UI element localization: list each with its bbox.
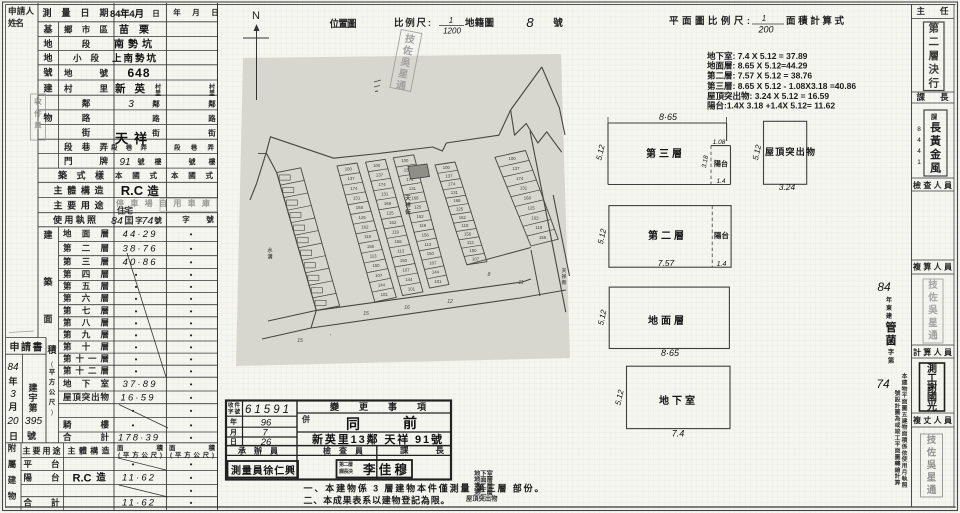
svg-text:主要用途: 主要用途 (23, 446, 62, 456)
svg-text:小 段: 小 段 (72, 53, 99, 63)
svg-text:佐: 佐 (927, 292, 938, 304)
svg-text:日: 日 (9, 432, 18, 442)
svg-text:段 巷 弄: 段 巷 弄 (64, 142, 108, 152)
svg-text:•: • (135, 343, 138, 352)
svg-text:騎 樓: 騎 樓 (63, 419, 109, 429)
svg-text:16: 16 (404, 305, 410, 311)
svg-text:•: • (190, 380, 193, 389)
svg-text:係: 係 (902, 442, 908, 450)
svg-text:第二層: 第二層 (339, 461, 353, 468)
svg-text:段: 段 (82, 39, 91, 49)
svg-text:•: • (190, 487, 193, 496)
svg-text:•: • (135, 331, 138, 340)
svg-text:137: 137 (348, 176, 356, 181)
svg-text:100: 100 (345, 167, 353, 172)
svg-text:一、本建物係 3 層建物本件僅測量 第三層 部份。: 一、本建物係 3 層建物本件僅測量 第三層 部份。 (304, 483, 544, 494)
svg-text:156: 156 (539, 235, 547, 240)
svg-text:地面層: 地面層 (648, 314, 684, 327)
svg-text:•: • (190, 245, 193, 254)
svg-text:84年4月: 84年4月 (110, 8, 144, 20)
svg-text:設: 設 (895, 395, 901, 403)
svg-text:162: 162 (361, 225, 369, 230)
svg-text:第: 第 (888, 356, 895, 365)
svg-text:162: 162 (459, 215, 467, 220)
svg-text:月: 月 (7, 402, 17, 412)
svg-text:里: 里 (209, 90, 215, 98)
svg-text:地 面 層: 地 面 層 (63, 229, 109, 239)
svg-text:125: 125 (414, 205, 422, 210)
svg-text:101: 101 (381, 292, 389, 297)
svg-text:計: 計 (895, 402, 901, 410)
svg-text:113: 113 (424, 242, 431, 247)
svg-text:管: 管 (886, 320, 897, 334)
svg-text:號: 號 (138, 157, 145, 166)
svg-text:面: 面 (43, 314, 52, 324)
svg-text:137: 137 (445, 173, 453, 178)
svg-text:屋頂突出物: 屋頂突出物 (765, 146, 815, 157)
svg-text:•: • (190, 460, 193, 469)
svg-text:佐: 佐 (926, 447, 937, 459)
svg-text:章: 章 (34, 120, 42, 130)
svg-text:648: 648 (127, 66, 150, 80)
svg-text:築: 築 (42, 276, 53, 287)
svg-text:1: 1 (917, 159, 921, 166)
svg-text:R.C: R.C (121, 183, 144, 198)
svg-text:水: 水 (266, 247, 273, 254)
svg-text:•: • (190, 343, 193, 352)
svg-text:方: 方 (49, 377, 56, 386)
svg-text:•: • (135, 283, 138, 292)
svg-text:84: 84 (7, 362, 19, 373)
svg-text:本 國 式: 本 國 式 (170, 170, 214, 180)
svg-text:陽 台: 陽 台 (24, 472, 60, 482)
svg-text:街: 街 (151, 128, 160, 138)
svg-text:131: 131 (520, 186, 528, 191)
svg-text:•: • (190, 258, 193, 267)
svg-text:3: 3 (128, 99, 134, 110)
svg-text:第 十 層: 第 十 層 (63, 342, 109, 352)
svg-text:84: 84 (111, 215, 123, 227)
svg-text:年: 年 (8, 376, 17, 387)
svg-text:8: 8 (526, 15, 534, 30)
svg-text:南勢坑: 南勢坑 (114, 38, 152, 51)
svg-text:層: 層 (929, 50, 940, 62)
svg-text:面積計算式: 面積計算式 (786, 15, 844, 27)
svg-text:課 長: 課 長 (400, 445, 444, 455)
svg-text:竣: 竣 (895, 427, 901, 435)
svg-text:主 任: 主 任 (917, 6, 949, 16)
svg-text:168: 168 (356, 205, 364, 210)
svg-text:第: 第 (28, 402, 37, 413)
svg-text:鄉 市 區: 鄉 市 區 (64, 25, 108, 35)
svg-text:100: 100 (443, 165, 451, 170)
svg-text:•: • (190, 270, 193, 279)
svg-text:吳: 吳 (926, 460, 937, 471)
svg-text:號: 號 (154, 215, 162, 225)
svg-text:通: 通 (927, 485, 937, 496)
svg-text:107: 107 (472, 256, 480, 261)
svg-text:使: 使 (901, 455, 908, 463)
svg-text:鄰: 鄰 (208, 99, 216, 109)
svg-text:•: • (190, 393, 193, 402)
svg-text:造: 造 (96, 471, 106, 483)
svg-text:街: 街 (81, 128, 91, 138)
svg-text:囯: 囯 (124, 216, 133, 226)
svg-text:第 三 層: 第 三 層 (63, 257, 109, 267)
svg-text:二、本成果表系以建物登記為限。: 二、本成果表系以建物登記為限。 (304, 495, 450, 506)
svg-text:光: 光 (926, 400, 937, 413)
svg-text:新英里13鄰 天祥 91號: 新英里13鄰 天祥 91號 (312, 432, 442, 446)
svg-text:建: 建 (43, 83, 53, 94)
svg-text:平面圖比例尺:: 平面圖比例尺: (669, 15, 750, 27)
svg-text:•: • (190, 433, 193, 442)
svg-text:樓: 樓 (209, 157, 216, 166)
svg-text:8·65: 8·65 (659, 112, 678, 122)
svg-text:•: • (190, 421, 193, 430)
svg-text:技: 技 (927, 434, 937, 446)
svg-text:申請人: 申請人 (8, 6, 34, 16)
svg-text:131: 131 (409, 186, 417, 191)
svg-text:街: 街 (561, 279, 567, 286)
svg-text:•: • (135, 367, 138, 376)
svg-text:物: 物 (43, 112, 52, 123)
svg-text:工: 工 (895, 435, 901, 442)
svg-text:162: 162 (531, 215, 539, 220)
svg-text:建: 建 (901, 378, 908, 386)
svg-text:101: 101 (408, 286, 416, 291)
svg-text:上南勢坑: 上南勢坑 (112, 53, 156, 65)
svg-text:(: ( (51, 362, 53, 368)
svg-text:本 國 式: 本 國 式 (114, 170, 158, 180)
svg-text:面: 面 (902, 398, 908, 406)
svg-text:第 六 層: 第 六 層 (63, 293, 109, 303)
svg-text:村: 村 (154, 83, 161, 91)
svg-text:黃: 黃 (929, 134, 941, 148)
svg-text:•: • (190, 473, 193, 482)
svg-text:162: 162 (417, 214, 425, 219)
svg-text:第二層: 第二層 (648, 229, 684, 242)
svg-text:100: 100 (401, 158, 409, 163)
svg-text:依: 依 (902, 449, 908, 457)
svg-text:第三層: 第三層 (646, 147, 682, 160)
svg-text:月: 月 (229, 429, 237, 437)
svg-text:課 長: 課 長 (917, 92, 949, 102)
svg-text:建: 建 (28, 382, 38, 393)
svg-text:基: 基 (42, 24, 53, 35)
svg-text:15: 15 (363, 311, 369, 317)
svg-text:段 巷 弄: 段 巷 弄 (174, 143, 215, 152)
svg-text:84: 84 (877, 280, 891, 294)
svg-text:150: 150 (427, 251, 435, 256)
svg-text:公: 公 (49, 388, 56, 396)
svg-text:•: • (190, 331, 193, 340)
svg-text:•: • (190, 283, 193, 292)
svg-text:1200: 1200 (443, 27, 461, 36)
svg-text:或: 或 (895, 421, 901, 429)
svg-text:168: 168 (524, 196, 532, 201)
svg-text:建: 建 (7, 475, 17, 485)
svg-text:行: 行 (928, 76, 940, 89)
svg-text:面: 面 (895, 447, 901, 455)
svg-text:圖: 圖 (902, 404, 908, 412)
svg-text:113: 113 (467, 240, 474, 245)
svg-text:月: 月 (191, 8, 200, 17)
svg-text:字: 字 (888, 347, 895, 356)
svg-text:號: 號 (43, 67, 52, 78)
svg-text:用: 用 (901, 463, 908, 470)
svg-text:第 八 層: 第 八 層 (63, 317, 109, 327)
svg-text:同: 同 (346, 416, 360, 432)
svg-text:面: 面 (902, 430, 908, 438)
svg-text:月: 月 (901, 468, 908, 476)
svg-text:156: 156 (464, 231, 472, 236)
svg-text:年: 年 (230, 417, 237, 426)
svg-text:陽台: 陽台 (714, 230, 730, 240)
svg-text:137: 137 (512, 166, 520, 171)
svg-text:併: 併 (301, 414, 310, 424)
svg-text:號: 號 (206, 214, 214, 224)
svg-text:107: 107 (403, 267, 411, 272)
svg-text:宇: 宇 (28, 392, 37, 403)
svg-text:131: 131 (381, 191, 389, 196)
svg-text:150: 150 (372, 263, 380, 268)
svg-text:162: 162 (389, 220, 397, 225)
svg-text:174: 174 (448, 182, 456, 187)
svg-text:風: 風 (930, 162, 941, 175)
svg-text:樓: 樓 (155, 157, 162, 166)
svg-text:74: 74 (142, 215, 154, 227)
svg-text:課長決: 課長決 (339, 468, 354, 475)
svg-text:113: 113 (370, 253, 377, 258)
svg-text:107: 107 (429, 260, 437, 265)
svg-text:168: 168 (384, 201, 392, 206)
svg-text:119: 119 (462, 223, 469, 228)
svg-text:125: 125 (456, 207, 464, 212)
svg-text:•: • (135, 355, 138, 364)
svg-text:溝: 溝 (267, 254, 272, 261)
svg-text:祥: 祥 (562, 273, 567, 280)
svg-text:積: 積 (901, 436, 908, 444)
svg-text:號: 號 (189, 157, 196, 166)
svg-text:合 計: 合 計 (62, 432, 109, 442)
svg-text:收件: 收件 (228, 401, 240, 409)
svg-text:積: 積 (46, 344, 57, 355)
svg-text:107: 107 (375, 273, 383, 278)
svg-text:1: 1 (762, 14, 766, 23)
svg-text:8·65: 8·65 (661, 348, 680, 358)
svg-text:174: 174 (378, 182, 386, 187)
svg-text:村 里: 村 里 (64, 84, 108, 94)
svg-text:件: 件 (34, 108, 42, 118)
svg-text:37·89: 37·89 (123, 379, 157, 390)
svg-text:平: 平 (895, 441, 901, 448)
svg-text:金: 金 (929, 147, 942, 161)
svg-text:144: 144 (405, 277, 413, 282)
svg-text:計: 計 (895, 472, 901, 480)
svg-text:1.4: 1.4 (717, 261, 727, 268)
svg-text:156: 156 (422, 232, 430, 237)
svg-text:本: 本 (902, 372, 908, 380)
svg-text:R.C: R.C (73, 472, 92, 484)
svg-text:137: 137 (376, 172, 384, 177)
svg-text:第: 第 (929, 22, 940, 35)
svg-text:174: 174 (516, 176, 524, 181)
svg-text:屋頂突出物: 屋頂突出物 (63, 392, 109, 402)
svg-text:15: 15 (297, 338, 303, 344)
svg-text:150: 150 (469, 248, 477, 253)
svg-text:照: 照 (902, 481, 908, 489)
svg-text:119: 119 (364, 234, 371, 239)
svg-text:天: 天 (562, 267, 567, 274)
svg-text:119: 119 (392, 229, 399, 234)
svg-text:第 七 層: 第 七 層 (63, 305, 109, 315)
svg-text:•: • (190, 295, 193, 304)
svg-text:第 四 層: 第 四 層 (63, 269, 109, 279)
svg-text:街: 街 (404, 208, 411, 216)
svg-text:8: 8 (488, 272, 491, 278)
svg-text:星: 星 (928, 318, 938, 329)
svg-text:平: 平 (902, 392, 908, 399)
svg-text:路: 路 (82, 113, 91, 123)
svg-text:尺: 尺 (49, 398, 56, 406)
svg-text:第 九 層: 第 九 層 (63, 329, 109, 339)
svg-text:路: 路 (152, 113, 160, 123)
svg-text:地下室: 7.4 X 5.12 = 37.89: 地下室: 7.4 X 5.12 = 37.89 (707, 51, 808, 61)
svg-text:圖: 圖 (895, 453, 901, 461)
svg-text:祥: 祥 (405, 201, 411, 209)
svg-text:12: 12 (447, 299, 453, 305)
svg-text:): ) (51, 410, 53, 416)
svg-text:119: 119 (535, 225, 542, 230)
svg-text:第二層: 7.57 X 5.12 = 38.76: 第二層: 7.57 X 5.12 = 38.76 (707, 71, 812, 81)
svg-text:3: 3 (10, 389, 16, 400)
svg-text:144: 144 (378, 282, 386, 287)
svg-text:街: 街 (207, 128, 216, 138)
svg-text:物: 物 (8, 491, 17, 501)
svg-text:•: • (190, 355, 193, 364)
svg-text:建: 建 (886, 312, 893, 320)
svg-text:第 五 層: 第 五 層 (63, 281, 109, 291)
svg-text:物: 物 (902, 423, 908, 431)
svg-text:7.4: 7.4 (672, 429, 685, 439)
svg-text:課: 課 (931, 112, 938, 121)
svg-text:168: 168 (411, 195, 419, 200)
svg-text:地: 地 (43, 38, 52, 49)
svg-text:地: 地 (43, 52, 52, 63)
svg-text:20: 20 (6, 416, 19, 427)
svg-text:1.4: 1.4 (716, 178, 725, 185)
svg-text:•: • (135, 307, 138, 316)
svg-text:4: 4 (917, 137, 921, 144)
svg-text:日: 日 (230, 438, 237, 446)
svg-text:第 二 層: 第 二 層 (63, 243, 109, 253)
svg-text:姓 名: 姓 名 (7, 18, 24, 28)
svg-text:150: 150 (400, 258, 408, 263)
svg-text:合 計: 合 計 (23, 497, 60, 507)
svg-text:字號: 字號 (228, 408, 240, 416)
svg-text:技: 技 (928, 279, 938, 291)
svg-text:比例尺:: 比例尺: (394, 17, 431, 29)
svg-text:檢 查 員: 檢 查 員 (323, 446, 363, 456)
svg-text:東: 東 (886, 304, 892, 312)
svg-text:100: 100 (373, 163, 381, 168)
svg-text:鄰: 鄰 (152, 99, 160, 109)
svg-text:平: 平 (49, 368, 56, 376)
svg-text:200: 200 (757, 25, 773, 35)
svg-text:建: 建 (901, 417, 908, 425)
svg-text:前: 前 (403, 415, 417, 431)
svg-text:地下室: 地下室 (659, 394, 695, 407)
svg-text:收: 收 (34, 96, 42, 106)
svg-text:算: 算 (895, 479, 901, 487)
svg-text:•: • (190, 319, 193, 328)
svg-text:里: 里 (155, 90, 161, 98)
svg-text:144: 144 (432, 270, 440, 275)
svg-text:星: 星 (927, 473, 937, 484)
svg-text:156: 156 (395, 239, 403, 244)
svg-text:•: • (135, 295, 138, 304)
svg-text:119: 119 (419, 223, 426, 228)
svg-text:五: 五 (902, 411, 908, 418)
svg-text:38·76: 38·76 (123, 244, 157, 255)
svg-text:174: 174 (350, 186, 358, 191)
svg-text:位置圖: 位置圖 (330, 18, 357, 30)
svg-text:執: 執 (902, 474, 908, 482)
svg-text:屋頂突出物: 屋頂突出物 (466, 493, 498, 502)
svg-text:菌: 菌 (886, 333, 897, 347)
svg-text:圖: 圖 (895, 408, 901, 416)
svg-text:字: 字 (182, 214, 190, 224)
svg-text:通: 通 (928, 330, 938, 341)
svg-text:號: 號 (553, 17, 563, 29)
svg-text:地 號: 地 號 (64, 68, 108, 78)
svg-text:113: 113 (397, 248, 404, 253)
svg-text:100: 100 (509, 156, 517, 161)
svg-text:•: • (190, 230, 193, 239)
svg-text:131: 131 (353, 196, 361, 201)
svg-text:苗 栗: 苗 栗 (119, 23, 149, 36)
svg-text:年: 年 (173, 7, 181, 17)
svg-text:125: 125 (359, 215, 367, 220)
svg-text:測量員徐仁興: 測量員徐仁興 (231, 464, 295, 477)
svg-text:新 英: 新 英 (115, 82, 146, 95)
svg-text:•: • (190, 307, 193, 316)
svg-text:125: 125 (528, 205, 536, 210)
svg-text:4: 4 (917, 148, 921, 155)
svg-text:申請書: 申請書 (10, 341, 43, 354)
svg-text:N: N (252, 10, 260, 22)
svg-text:地籍圖: 地籍圖 (465, 17, 494, 29)
svg-text:繪: 繪 (895, 466, 901, 474)
svg-text:路: 路 (208, 113, 216, 123)
svg-text:3.24: 3.24 (779, 182, 796, 192)
svg-text:日: 日 (152, 9, 160, 18)
svg-text:8: 8 (917, 126, 921, 133)
svg-text:號: 號 (895, 389, 901, 397)
svg-text:號: 號 (27, 430, 36, 441)
svg-text:屋頂突出物: 3.24 X 5.12 = 16.59: 屋頂突出物: 3.24 X 5.12 = 16.59 (707, 91, 829, 101)
svg-text:125: 125 (387, 210, 395, 215)
svg-text:91: 91 (119, 157, 130, 168)
svg-text:平 台: 平 台 (24, 459, 60, 469)
svg-text:156: 156 (367, 244, 375, 249)
svg-text:地 下 室: 地 下 室 (63, 379, 109, 389)
svg-text:日: 日 (211, 8, 219, 17)
svg-text:•: • (190, 498, 193, 507)
svg-text:74: 74 (876, 377, 890, 391)
svg-text:物: 物 (902, 385, 908, 393)
svg-text:為: 為 (895, 415, 901, 423)
